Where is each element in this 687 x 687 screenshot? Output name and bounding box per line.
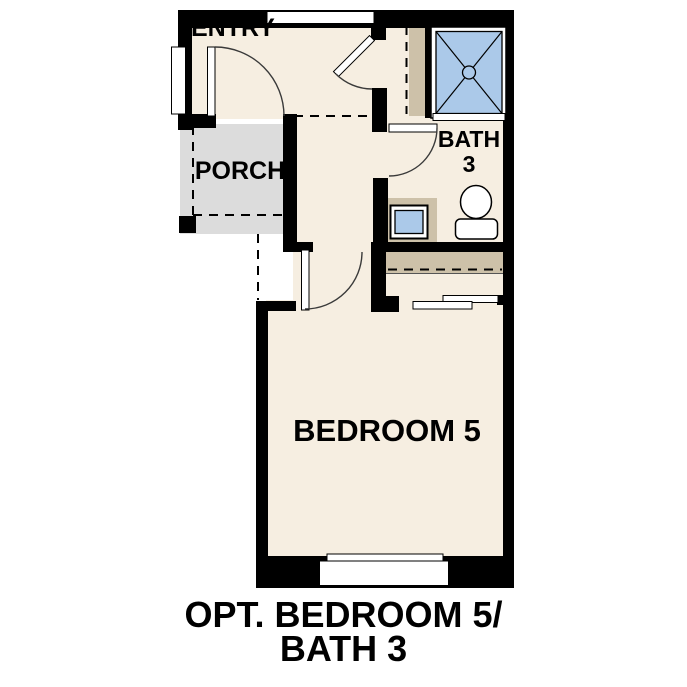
bedroom-label: BEDROOM 5 xyxy=(257,413,517,449)
porch-post xyxy=(179,216,196,233)
wall-below-bath xyxy=(371,242,514,252)
sink-basin xyxy=(395,211,423,234)
bath-label: BATH3 xyxy=(430,127,508,177)
bedroom-door-leaf xyxy=(302,250,310,310)
toilet-bowl xyxy=(461,186,492,219)
linen-shelf xyxy=(409,24,426,116)
bedroom-window xyxy=(320,561,449,586)
entry-door-leaf xyxy=(208,47,216,116)
porch-label: PORCH xyxy=(185,157,295,186)
entry-top-window xyxy=(267,12,374,24)
closet-sliding-door-front xyxy=(413,302,472,310)
entry-label: ENTRY xyxy=(191,14,275,43)
wall-bath-left xyxy=(373,178,388,250)
entry-left-window xyxy=(172,47,186,114)
shower-curb xyxy=(433,114,505,121)
floorplan: ENTRY PORCH BATH3 BEDROOM 5 OPT. BEDROOM… xyxy=(0,0,687,687)
wall-hall-stub-top xyxy=(371,24,386,40)
wall-hall-stub-mid xyxy=(372,88,387,132)
bath-label-line1: BATH xyxy=(438,126,500,152)
hall-floor xyxy=(293,112,383,255)
plan-caption-line2: BATH 3 xyxy=(280,628,407,669)
wall-closet-stub-left xyxy=(375,296,399,312)
shower-drain xyxy=(463,66,476,79)
floorplan-drawing xyxy=(0,0,687,687)
bath-label-line2: 3 xyxy=(463,151,476,177)
plan-caption: OPT. BEDROOM 5/BATH 3 xyxy=(0,598,687,666)
toilet-tank xyxy=(456,219,498,239)
